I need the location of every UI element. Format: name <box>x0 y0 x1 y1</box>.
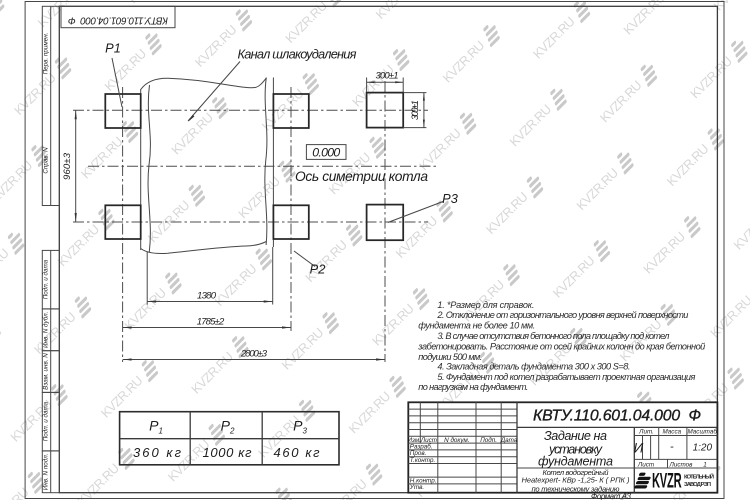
svg-text:P3: P3 <box>442 191 458 206</box>
svg-text:ЗАВОД РЭП: ЗАВОД РЭП <box>684 482 711 488</box>
svg-text:фундамента не более 10 мм.: фундамента не более 10 мм. <box>418 321 535 331</box>
svg-text:КВТУ.110.601.04.000 Ф: КВТУ.110.601.04.000 Ф <box>68 15 168 26</box>
svg-text:забетонировать. Расстояние от: забетонировать. Расстояние от осей крайн… <box>417 341 705 351</box>
svg-text:Подп.: Подп. <box>480 436 497 444</box>
svg-text:по нагрузкам на фундамент.: по нагрузкам на фундамент. <box>418 382 528 392</box>
svg-text:Дата: Дата <box>500 437 518 444</box>
svg-text:Масса: Масса <box>662 429 681 436</box>
svg-text:P1: P1 <box>105 41 121 56</box>
svg-text:Подп. и дата: Подп. и дата <box>41 401 49 441</box>
svg-text:Heatexpert- КВр -1,25- К ( РПК: Heatexpert- КВр -1,25- К ( РПК ) <box>522 476 630 485</box>
svg-text:Лит.: Лит. <box>638 429 654 436</box>
svg-text:2. Отклонение от горизонтально: 2. Отклонение от горизонтального уровня … <box>436 310 688 320</box>
svg-text:460 кг: 460 кг <box>274 445 321 460</box>
svg-text:Задание на: Задание на <box>544 429 607 443</box>
svg-text:Ось симетрии котла: Ось симетрии котла <box>295 169 428 184</box>
svg-text:подушки 500 мм.: подушки 500 мм. <box>418 352 482 362</box>
svg-text:2800±3: 2800±3 <box>240 348 268 359</box>
svg-text:Подп. и дата: Подп. и дата <box>41 259 49 299</box>
svg-text:Взам. инв. N: Взам. инв. N <box>42 353 49 390</box>
svg-text:1785±2: 1785±2 <box>197 316 225 327</box>
svg-text:Инв. N подл.: Инв. N подл. <box>41 453 49 490</box>
svg-text:-: - <box>670 441 674 453</box>
svg-text:4. Закладная деталь фундамента: 4. Закладная деталь фундамента 300 x 300… <box>437 362 630 372</box>
svg-text:300±1: 300±1 <box>410 100 421 120</box>
svg-text:1380: 1380 <box>197 290 217 301</box>
svg-text:1000 кг: 1000 кг <box>203 445 253 460</box>
svg-text:Перв. примен.: Перв. примен. <box>42 33 49 75</box>
svg-text:Утв.: Утв. <box>409 484 424 491</box>
svg-text:Формат А3: Формат А3 <box>591 492 632 500</box>
svg-text:P2: P2 <box>310 262 326 277</box>
svg-text:И: И <box>634 441 644 456</box>
svg-text:Разраб.: Разраб. <box>410 442 433 450</box>
svg-text:1:20: 1:20 <box>693 442 713 453</box>
svg-text:фундамента: фундамента <box>538 455 613 469</box>
svg-text:КВТУ.110.601.04.000 Ф: КВТУ.110.601.04.000 Ф <box>533 407 701 424</box>
svg-text:КОТЕЛЬНЫЙ: КОТЕЛЬНЫЙ <box>684 472 714 480</box>
svg-text:5. Фундамент под котел разраба: 5. Фундамент под котел разрабатывает про… <box>437 372 695 382</box>
svg-text:Справ. N: Справ. N <box>42 147 49 174</box>
svg-text:1: 1 <box>703 461 707 468</box>
svg-text:Канал шлакоудаления: Канал шлакоудаления <box>238 47 357 62</box>
svg-text:960±3: 960±3 <box>62 152 73 180</box>
svg-text:0.000: 0.000 <box>312 145 340 159</box>
svg-text:Т.контр.: Т.контр. <box>410 457 435 464</box>
svg-text:3. В случае отсутствия бетонно: 3. В случае отсутствия бетонного пола пл… <box>437 331 669 341</box>
svg-text:Инв. N дубл.: Инв. N дубл. <box>41 312 49 348</box>
svg-text:Масштаб: Масштаб <box>687 428 717 436</box>
svg-text:300±1: 300±1 <box>376 71 399 82</box>
svg-text:1. *Размер для справок.: 1. *Размер для справок. <box>437 300 534 310</box>
svg-text:N докум.: N докум. <box>444 436 469 444</box>
svg-text:KVZR: KVZR <box>652 468 682 493</box>
